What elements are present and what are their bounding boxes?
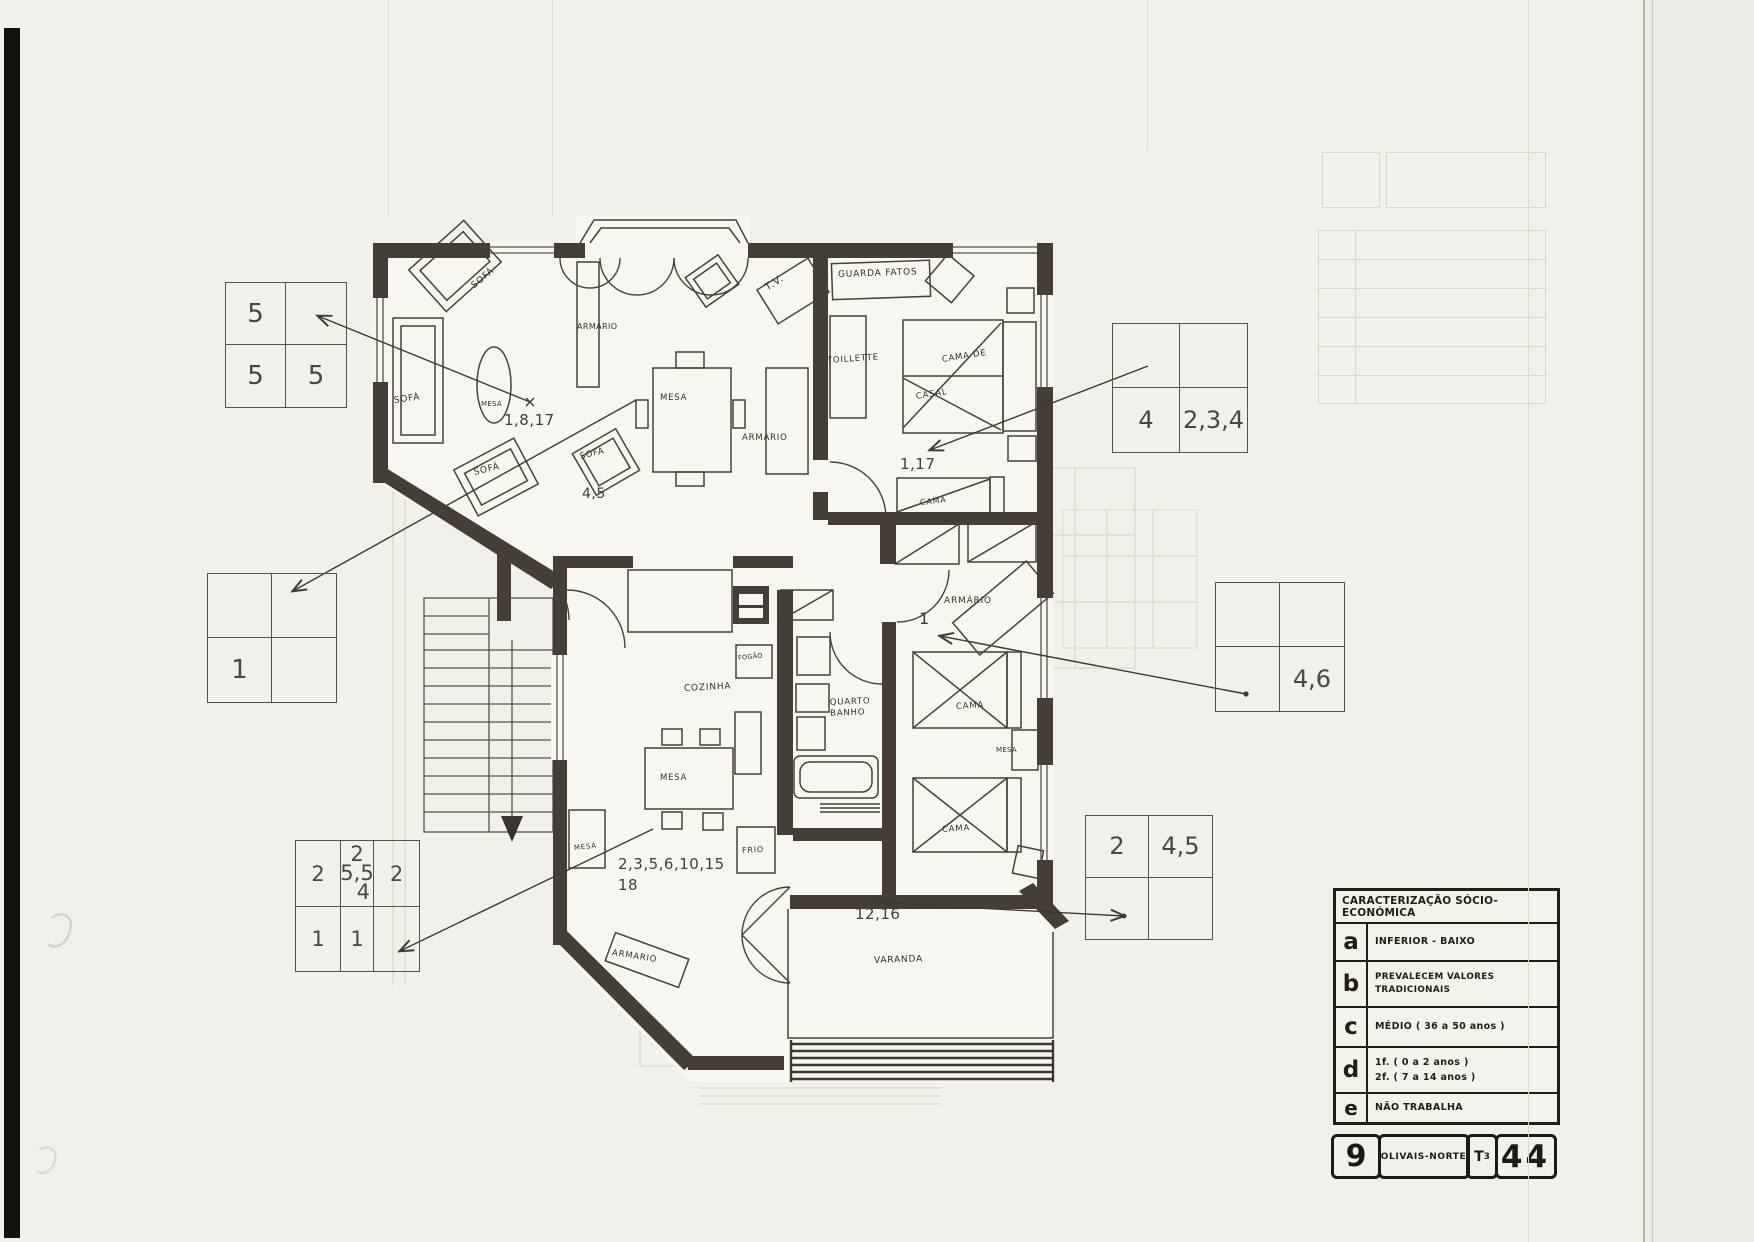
sheet-number: 9 (1331, 1134, 1381, 1179)
legend-key-d: d (1336, 1048, 1368, 1092)
legend-key-e: e (1336, 1094, 1368, 1122)
page-edge-line-2 (1652, 0, 1653, 1242)
label-dining-table: MESA (660, 393, 687, 403)
ref-hall: 4,5 (582, 486, 606, 502)
label-frio: FRIO (742, 845, 764, 855)
scanned-sheet: SOFÁ SOFÁ SOFÁ SOFÁ MESA ARMARIO T.V. ME… (0, 0, 1754, 1242)
legend-text-e: NÃO TRABALHA (1375, 1101, 1557, 1115)
legend-text-b: PREVALECEM VALORES TRADICIONAIS (1375, 971, 1557, 997)
grid-cell: 5 (226, 345, 286, 407)
annotation-grid-5: 4,6 (1215, 582, 1345, 712)
stairs (424, 598, 553, 842)
label-mesa-bedroom2: MESA (996, 746, 1017, 754)
plan-underlay (373, 216, 1053, 1082)
grid-cell: 2 (374, 841, 419, 907)
grid-cell: 2,3,4 (1180, 388, 1247, 452)
typology-cell: T3 (1466, 1134, 1498, 1179)
label-varanda: VARANDA (874, 954, 923, 966)
label-oval-table: MESA (481, 400, 502, 408)
legend-table: CARACTERIZAÇÃO SÓCIO-ECONÓMICA a INFERIO… (1333, 888, 1560, 1125)
legend-row-a: a INFERIOR - BAIXO (1336, 924, 1557, 962)
legend-text-d2: 2f. ( 7 a 14 anos ) (1375, 1070, 1557, 1085)
grid-cell (374, 907, 419, 971)
fold-line-4 (1528, 0, 1529, 1242)
ref-bedroom1: 1,17 (900, 455, 935, 473)
legend-row-e: e NÃO TRABALHA (1336, 1094, 1557, 1122)
grid-cell (1216, 647, 1280, 711)
legend-key-a: a (1336, 924, 1368, 960)
typology-index: 3 (1484, 1152, 1490, 1162)
legend-row-b: b PREVALECEM VALORES TRADICIONAIS (1336, 962, 1557, 1008)
grid-cell-value: 4 (357, 883, 370, 902)
ref-kitchen: 2,3,5,6,10,15 18 (618, 854, 725, 896)
ref-kitchen-line1: 2,3,5,6,10,15 (618, 854, 725, 875)
label-cama-bedroom2a: CAMA (956, 700, 985, 712)
legend-key-c: c (1336, 1008, 1368, 1046)
page-edge-line (1643, 0, 1645, 1242)
legend-title: CARACTERIZAÇÃO SÓCIO-ECONÓMICA (1336, 891, 1557, 924)
grid-cell (1113, 324, 1180, 388)
grid-cell: 1 (341, 907, 374, 971)
page-right-margin (1643, 0, 1754, 1242)
grid-cell: 1 (208, 638, 272, 702)
legend-text-a: INFERIOR - BAIXO (1375, 935, 1557, 949)
fold-line-1 (388, 0, 389, 215)
annotation-grid-3: 1 (207, 573, 337, 703)
grid-cell: 5 (286, 345, 346, 407)
grid-cell (1180, 324, 1247, 388)
grid-cell (1280, 583, 1344, 647)
grid-cell: 4 (1113, 388, 1180, 452)
grid-cell (272, 574, 336, 638)
grid-cell (1216, 583, 1280, 647)
label-wardrobe-living: ARMARIO (577, 322, 617, 331)
ref-kitchen-line2: 18 (618, 875, 725, 896)
stairs-direction-arrow (501, 816, 523, 842)
grid-cell: 2 (1086, 816, 1149, 878)
annotation-grid-4: 2 2 5,5 4 2 1 1 (295, 840, 420, 972)
legend-text-d1: 1f. ( 0 a 2 anos ) (1375, 1055, 1557, 1070)
grid-cell: 5 (226, 283, 286, 345)
legend-row-c: c MÉDIO ( 36 a 50 anos ) (1336, 1008, 1557, 1048)
annotation-grid-6: 2 4,5 (1085, 815, 1213, 940)
fold-line-2 (552, 0, 553, 215)
typology-letter: T (1474, 1149, 1484, 1165)
grid-cell (1149, 878, 1212, 940)
grid-cell: 2 (296, 841, 341, 907)
label-cama-bedroom2b: CAMA (942, 823, 971, 835)
ref-varanda: 12,16 (855, 905, 900, 923)
grid-cell (208, 574, 272, 638)
legend-key-b: b (1336, 962, 1368, 1006)
title-block: 9 OLIVAIS-NORTE T3 44 (1331, 1134, 1557, 1179)
grid-cell: 1 (296, 907, 341, 971)
grid-cell (272, 638, 336, 702)
label-mesa-kitchen: MESA (660, 773, 687, 783)
annotation-grid-1: 5 5 5 (225, 282, 347, 408)
label-quarto-banho: QUARTO BANHO (830, 696, 871, 720)
sheet-code: 44 (1495, 1134, 1557, 1179)
legend-text-c: MÉDIO ( 36 a 50 anos ) (1375, 1020, 1557, 1034)
label-banho: BANHO (830, 708, 865, 719)
annotation-grid-2: 4 2,3,4 (1112, 323, 1248, 453)
ref-bedroom2: 1 (919, 609, 930, 628)
grid-cell: 2 5,5 4 (341, 841, 374, 907)
scan-edge-bar (4, 28, 20, 1238)
grid-cell: 4,5 (1149, 816, 1212, 878)
label-quarto: QUARTO (830, 696, 871, 707)
fold-line-3 (1147, 0, 1148, 150)
label-wardrobe-dining: ARMARIO (742, 433, 788, 443)
ref-living: 1,8,17 (504, 411, 555, 429)
sheet-name: OLIVAIS-NORTE (1378, 1134, 1470, 1179)
label-wardrobe-bedroom2: ARMÁRIO (944, 596, 992, 606)
grid-cell (1086, 878, 1149, 940)
grid-cell (286, 283, 346, 345)
grid-cell: 4,6 (1280, 647, 1344, 711)
legend-row-d: d 1f. ( 0 a 2 anos ) 2f. ( 7 a 14 anos ) (1336, 1048, 1557, 1094)
